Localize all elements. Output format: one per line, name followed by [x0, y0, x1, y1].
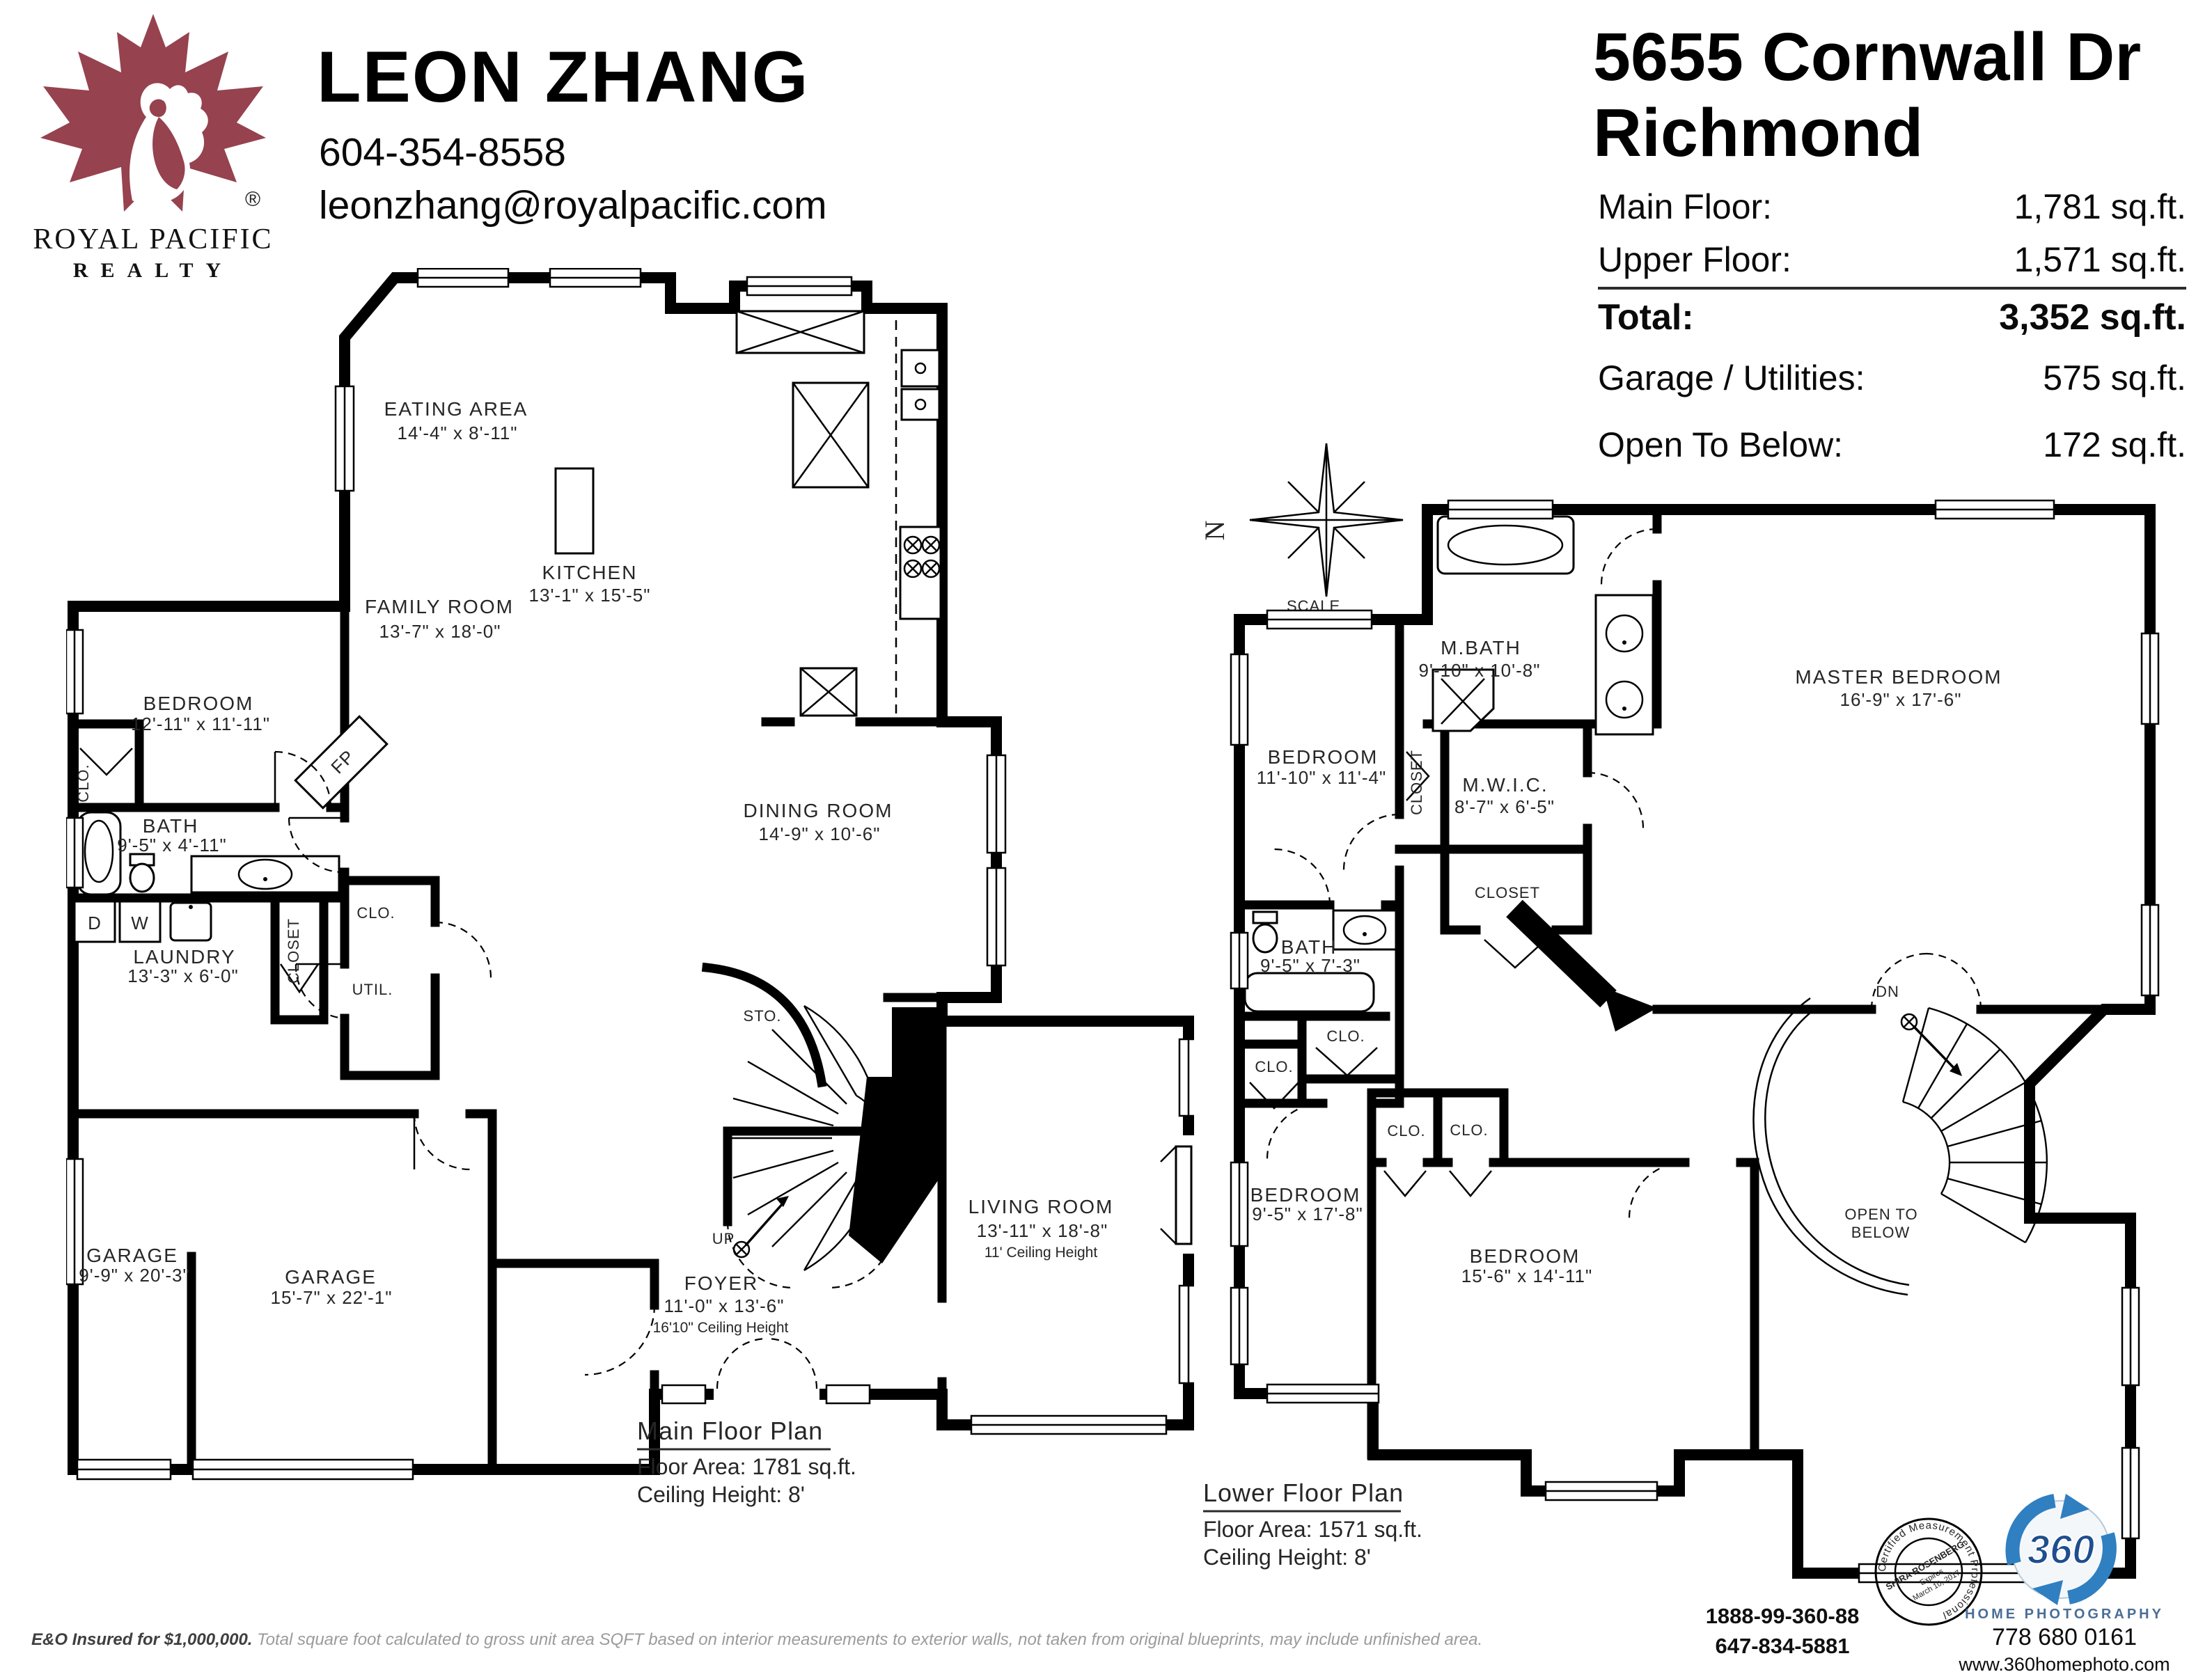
photography-name: HOME PHOTOGRAPHY [1956, 1607, 2172, 1623]
room-dims: 9'-10" x 10'-8" [1419, 660, 1541, 681]
room-label: KITCHEN [542, 562, 638, 583]
room-note: 11' Ceiling Height [985, 1245, 1098, 1261]
agent-phone: 604-354-8558 [319, 129, 566, 175]
closet-label: CLOSET [1408, 750, 1425, 815]
photography-phone: 778 680 0161 [1956, 1624, 2172, 1651]
logo-360-number: 360 [2027, 1527, 2095, 1572]
room-dims: 12'-11" x 11'-11" [131, 713, 270, 734]
washer-label: W [131, 913, 149, 933]
room-label: M.W.I.C. [1462, 774, 1548, 796]
room-label: LAUNDRY [133, 946, 235, 968]
room-label: LIVING ROOM [968, 1196, 1114, 1217]
area-value: 575 sq.ft. [2043, 358, 2186, 398]
north-label: N [1199, 521, 1230, 541]
area-value: 1,571 sq.ft. [2014, 239, 2186, 280]
room-label: EATING AREA [384, 398, 528, 420]
room-dims: 11'-0" x 13'-6" [664, 1295, 785, 1316]
phone-alt: 647-834-5881 [1668, 1634, 1897, 1659]
dn-label: DN [1876, 983, 1899, 1000]
room-label: BATH [143, 815, 199, 837]
plan-caption-ceiling: Ceiling Height: 8' [1203, 1545, 1371, 1570]
phone-toll: 1888-99-360-88 [1668, 1604, 1897, 1629]
area-row-main: Main Floor: 1,781 sq.ft. [1598, 187, 2186, 227]
room-dims: 16'-9" x 17'-6" [1840, 689, 1962, 710]
floor-plan-upper: N SCALE 0' 5' [1198, 425, 2165, 1608]
area-sum-divider [1598, 287, 2186, 290]
area-value: 1,781 sq.ft. [2014, 187, 2186, 227]
plan-caption-title: Lower Floor Plan [1203, 1478, 1404, 1507]
brand-logo: ® [28, 13, 279, 221]
stair-wall-mass [892, 1007, 942, 1077]
room-label: GARAGE [285, 1266, 377, 1288]
area-label: Garage / Utilities: [1598, 358, 1865, 398]
up-label: UP [712, 1230, 735, 1247]
room-dims: 13'-1" x 15'-5" [529, 585, 651, 606]
room-dims: 9'-9" x 20'-3" [79, 1265, 189, 1286]
room-dims: 14'-9" x 10'-6" [759, 823, 881, 844]
open-below-label: OPEN TO [1844, 1206, 1917, 1223]
photography-website: www.360homephoto.com [1956, 1654, 2172, 1672]
plan-caption-title: Main Floor Plan [637, 1417, 823, 1445]
photography-logo-icon: 360 [1988, 1491, 2134, 1608]
area-row-total: Total: 3,352 sq.ft. [1598, 297, 2186, 338]
room-label: BEDROOM [1470, 1245, 1580, 1267]
plan-caption-ceiling: Ceiling Height: 8' [637, 1482, 805, 1507]
room-label: FOYER [684, 1272, 758, 1294]
room-dims: 13'-7" x 18'-0" [379, 621, 501, 642]
floor-plan-main: D W FP [66, 268, 1194, 1549]
disclaimer: E&O Insured for $1,000,000. Total square… [31, 1630, 1482, 1650]
closet-label: CLO. [356, 904, 395, 922]
plan-caption-area: Floor Area: 1781 sq.ft. [637, 1454, 856, 1479]
area-value: 3,352 sq.ft. [1999, 297, 2186, 338]
photography-block: HOME PHOTOGRAPHY 778 680 0161 www.360hom… [1956, 1607, 2172, 1672]
room-label: BEDROOM [1268, 746, 1379, 768]
area-label: Upper Floor: [1598, 239, 1791, 280]
disclaimer-body: Total square foot calculated to gross un… [257, 1630, 1482, 1649]
closet-label: CLO. [1450, 1121, 1488, 1139]
area-row-garage: Garage / Utilities: 575 sq.ft. [1598, 358, 2186, 398]
dryer-label: D [88, 913, 102, 933]
room-label: DINING ROOM [744, 800, 893, 821]
room-dims: 9'-5" x 7'-3" [1260, 955, 1360, 976]
compass-rose-icon [1250, 443, 1403, 597]
closet-label: CLO. [1255, 1058, 1293, 1075]
room-dims: 15'-6" x 14'-11" [1461, 1265, 1592, 1286]
open-below-label: BELOW [1851, 1224, 1910, 1241]
room-label: BEDROOM [1250, 1184, 1361, 1206]
area-label: Main Floor: [1598, 187, 1772, 227]
registered-mark: ® [245, 188, 260, 212]
closet-label: CLO. [1326, 1027, 1365, 1045]
room-dims: 14'-4" x 8'-11" [398, 423, 518, 443]
room-note: 16'10" Ceiling Height [653, 1320, 789, 1336]
room-dims: 8'-7" x 6'-5" [1454, 796, 1555, 817]
room-dims: 15'-7" x 22'-1" [271, 1287, 393, 1308]
room-label: MASTER BEDROOM [1795, 666, 2002, 688]
room-label: BEDROOM [143, 693, 254, 714]
room-dims: 9'-5" x 4'-11" [117, 835, 227, 855]
maple-leaf-lion-icon [28, 13, 279, 221]
closet-label: CLO. [74, 764, 92, 802]
closet-label: CLOSET [1475, 884, 1540, 901]
agent-email: leonzhang@royalpacific.com [319, 182, 827, 228]
room-label: GARAGE [86, 1245, 178, 1266]
room-label: FAMILY ROOM [365, 596, 514, 617]
area-summary: Main Floor: 1,781 sq.ft. Upper Floor: 1,… [1598, 0, 2186, 487]
agent-name: LEON ZHANG [317, 36, 810, 119]
closet-label: CLO. [1387, 1122, 1425, 1139]
room-dims: 13'-3" x 6'-0" [127, 965, 238, 986]
brand-name: ROYAL PACIFIC [19, 223, 287, 256]
garage-doors [77, 1460, 413, 1479]
room-label: M.BATH [1441, 637, 1521, 658]
room-dims: 9'-5" x 17'-8" [1252, 1204, 1363, 1224]
area-row-upper: Upper Floor: 1,571 sq.ft. [1598, 239, 2186, 280]
closet-label: CLOSET [285, 918, 302, 984]
storage-label: STO. [744, 1007, 782, 1025]
utility-label: UTIL. [352, 981, 393, 998]
flyer-page: ® ROYAL PACIFIC REALTY LEON ZHANG 604-35… [0, 0, 2212, 1672]
room-dims: 11'-10" x 11'-4" [1257, 767, 1387, 788]
contact-phones: 1888-99-360-88 647-834-5881 [1668, 1604, 1897, 1659]
room-dims: 13'-11" x 18'-8" [977, 1220, 1108, 1241]
plan-caption-area: Floor Area: 1571 sq.ft. [1203, 1517, 1422, 1542]
area-label: Total: [1598, 297, 1694, 338]
disclaimer-lead: E&O Insured for $1,000,000. [31, 1630, 252, 1649]
